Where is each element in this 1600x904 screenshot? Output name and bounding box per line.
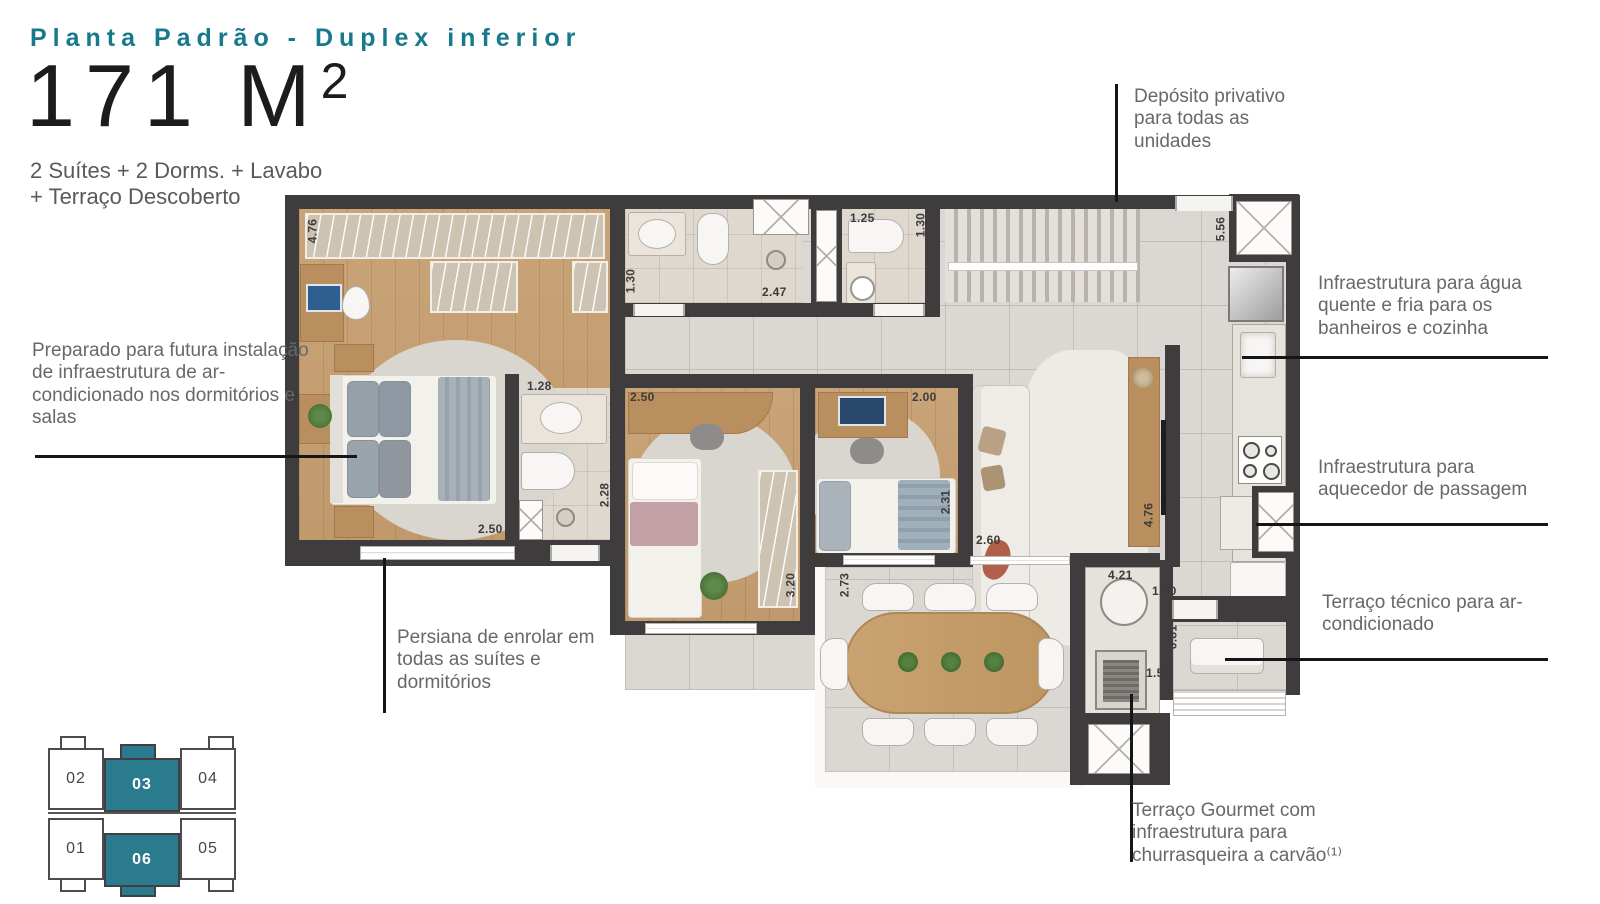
bath-niche-shaft xyxy=(753,199,809,235)
suite2-shaft xyxy=(519,500,543,540)
cooktop xyxy=(1238,436,1282,484)
nightstand-bottom xyxy=(334,506,374,538)
dimension-label: 1.25 xyxy=(850,211,875,225)
bathroom-sink xyxy=(638,219,676,249)
keyplan-unit-label: 05 xyxy=(198,840,218,858)
dimension-label: 2.50 xyxy=(478,522,503,536)
dining-chair xyxy=(862,718,914,746)
master-pillow xyxy=(379,440,411,498)
suite2-sink xyxy=(540,402,582,434)
dimension-label: 1.58 xyxy=(1146,666,1171,680)
dimension-label: 2.73 xyxy=(837,573,851,598)
wall-segment xyxy=(505,374,519,540)
dining-chair xyxy=(862,583,914,611)
suite2-toilet xyxy=(521,452,575,490)
dimension-label: 2.60 xyxy=(976,533,1001,547)
floor-plan-page: Planta Padrão - Duplex inferior 171 M2 2… xyxy=(0,0,1600,904)
note-agua: Infraestrutura para água quente e fria p… xyxy=(1318,273,1553,340)
dining-chair xyxy=(986,718,1038,746)
wall-segment xyxy=(1070,553,1085,715)
bedroom1-blanket xyxy=(630,502,698,546)
area-value: 171 M2 xyxy=(26,52,348,140)
dimension-label: 2.00 xyxy=(912,390,937,404)
bedroom1-pillows xyxy=(632,462,698,500)
barbecue-grill-grate xyxy=(1103,660,1139,702)
heater-shaft xyxy=(1258,492,1294,552)
entry-door xyxy=(1175,196,1233,211)
laptop xyxy=(838,396,886,426)
area-number: 171 M xyxy=(26,46,321,145)
dimension-label: 2.47 xyxy=(762,285,787,299)
keyplan-unit-02: 02 xyxy=(48,748,104,810)
dimension-label: 2.31 xyxy=(938,490,952,515)
bedroom1-plant-icon xyxy=(700,572,728,600)
wall-segment xyxy=(800,374,815,635)
dining-chair xyxy=(986,583,1038,611)
louver-window xyxy=(1173,690,1286,716)
shower-head-icon xyxy=(766,250,786,270)
bedroom1-chair xyxy=(690,424,724,450)
leader-line-preparado xyxy=(35,455,357,458)
laptop xyxy=(306,284,342,312)
table-plant-icon xyxy=(898,652,918,672)
door-opening xyxy=(550,545,600,561)
dining-chair xyxy=(820,638,848,690)
keyplan-corridor-line xyxy=(48,812,236,814)
note-preparado: Preparado para futura instalação de infr… xyxy=(32,340,332,430)
table-plant-icon xyxy=(984,652,1004,672)
wall-segment xyxy=(958,374,973,567)
master-closet xyxy=(305,213,605,259)
dimension-label: 2.50 xyxy=(630,390,655,404)
desk-chair xyxy=(342,286,370,320)
stair-handrail xyxy=(948,262,1138,271)
program-line-1: 2 Suítes + 2 Dorms. + Lavabo xyxy=(30,158,322,184)
dimension-label: 4.76 xyxy=(1141,503,1155,528)
keyplan-unit-label: 04 xyxy=(198,770,218,788)
elevator-shaft xyxy=(1236,201,1292,255)
wall-segment xyxy=(610,374,973,388)
sofa-pillow xyxy=(980,464,1006,491)
keyplan-unit-label: 03 xyxy=(132,776,152,794)
bedroom2-window xyxy=(843,555,935,565)
program-summary: 2 Suítes + 2 Dorms. + Lavabo + Terraço D… xyxy=(30,158,322,211)
gourmet-sink xyxy=(1100,578,1148,626)
dining-chair xyxy=(1038,638,1064,690)
nightstand-top xyxy=(334,344,374,372)
wall-segment xyxy=(610,195,625,635)
bedroom2-chair xyxy=(850,438,884,464)
master-wardrobe-2 xyxy=(572,261,608,313)
ac-condenser-unit xyxy=(1190,638,1264,674)
leader-line-agua xyxy=(1242,356,1548,359)
duct-shaft xyxy=(816,210,837,302)
dimension-label: 0.81 xyxy=(1165,625,1179,650)
dining-chair xyxy=(924,583,976,611)
dimension-label: 1.30 xyxy=(623,269,637,294)
note-aquecedor: Infraestrutura para aquecedor de passage… xyxy=(1318,457,1568,502)
master-pillow xyxy=(347,381,379,437)
table-plant-icon xyxy=(941,652,961,672)
area-superscript: 2 xyxy=(321,53,349,109)
gourmet-shaft xyxy=(1088,724,1150,774)
console-plant-icon xyxy=(1133,368,1153,388)
keyplan-unit-06: 06 xyxy=(104,833,180,887)
bedroom2-pillows xyxy=(819,481,851,551)
leader-line-tecnico xyxy=(1225,658,1548,661)
tv xyxy=(1161,420,1166,515)
keyplan-unit-03: 03 xyxy=(104,758,180,812)
dimension-label: 3.20 xyxy=(783,573,797,598)
master-pillow xyxy=(347,440,379,498)
dimension-label: 5.56 xyxy=(1213,217,1227,242)
bedroom1-window xyxy=(645,623,757,634)
master-blanket xyxy=(438,377,490,501)
note-gourmet: Terraço Gourmet com infraestrutura para … xyxy=(1132,800,1387,867)
leader-line-persiana xyxy=(383,558,386,713)
wall-segment xyxy=(1165,345,1180,567)
note-persiana: Persiana de enrolar em todas as suítes e… xyxy=(397,627,597,694)
dimension-label: 1.30 xyxy=(913,213,927,238)
dimension-label: 1.60 xyxy=(1152,584,1177,598)
terrace-sliding-door xyxy=(970,556,1070,565)
door-opening xyxy=(633,304,685,316)
keyplan-unit-01: 01 xyxy=(48,818,104,880)
leader-line-aquecedor xyxy=(1256,523,1548,526)
door-opening xyxy=(873,304,925,316)
keyplan-unit-label: 02 xyxy=(66,770,86,788)
dimension-label: 1.28 xyxy=(527,379,552,393)
master-pillow xyxy=(379,381,411,437)
note-tecnico: Terraço técnico para ar-condicionado xyxy=(1322,592,1537,637)
program-line-2: + Terraço Descoberto xyxy=(30,184,322,210)
dining-chair xyxy=(924,718,976,746)
leader-line-deposito xyxy=(1115,84,1118,202)
wall-segment xyxy=(1286,195,1300,695)
dimension-label: 2.28 xyxy=(597,483,611,508)
note-deposito: Depósito privativo para todas as unidade… xyxy=(1134,86,1324,153)
door-opening xyxy=(1172,600,1218,619)
keyplan-unit-label: 06 xyxy=(132,851,152,869)
kitchen-lower-counter xyxy=(1220,496,1254,550)
lavabo-sink xyxy=(850,276,875,301)
suite2-shower-head-icon xyxy=(556,508,575,527)
keyplan-unit-label: 01 xyxy=(66,840,86,858)
dimension-label: 4.21 xyxy=(1108,568,1133,582)
kitchen-sink xyxy=(1240,332,1276,378)
toilet xyxy=(697,213,729,265)
dimension-label: 4.76 xyxy=(305,219,319,244)
refrigerator xyxy=(1228,266,1284,322)
master-wardrobe xyxy=(430,261,518,313)
staircase xyxy=(945,209,1140,302)
keyplan-unit-05: 05 xyxy=(180,818,236,880)
keyplan-unit-04: 04 xyxy=(180,748,236,810)
